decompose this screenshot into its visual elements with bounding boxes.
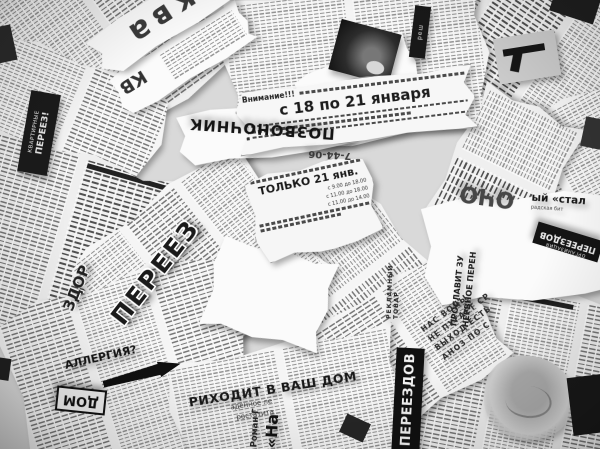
dark-scrap-fragment [567,374,600,436]
advert-goods-vertical-text: РЕКЛАМНЫЙ ТОВАР [387,241,402,319]
reklamnyj-text: РЕКЛАМНЫЙ ТОВАР [386,241,403,319]
newspaper-collage-photo: осква КВ КВАРТИРНЫЕ ПЕРЕЕЗ! Внимание!!! … [0,0,600,449]
pereezdov-vertical-banner: ПЕРЕЕЗДОВ [391,347,424,449]
roman-vertical-text: Роман Г «На [246,385,285,449]
upside-down-phone-number: 7-44-06 [298,144,363,161]
dom-label: ДОМ [55,385,107,415]
pistol-grip-shape [510,52,522,72]
resh-text: реш [416,24,425,41]
pistol-photo [493,29,561,84]
pereezdov-vertical-text: ПЕРЕЕЗДОВ [398,353,418,447]
stalingrad-headline-fragment: ый «стал радская бит [530,192,600,223]
sketch-stroke [504,384,553,420]
pistol-barrel-shape [503,43,546,56]
roman-title: «На [261,386,283,449]
roman-author: Роман Г [249,385,262,447]
